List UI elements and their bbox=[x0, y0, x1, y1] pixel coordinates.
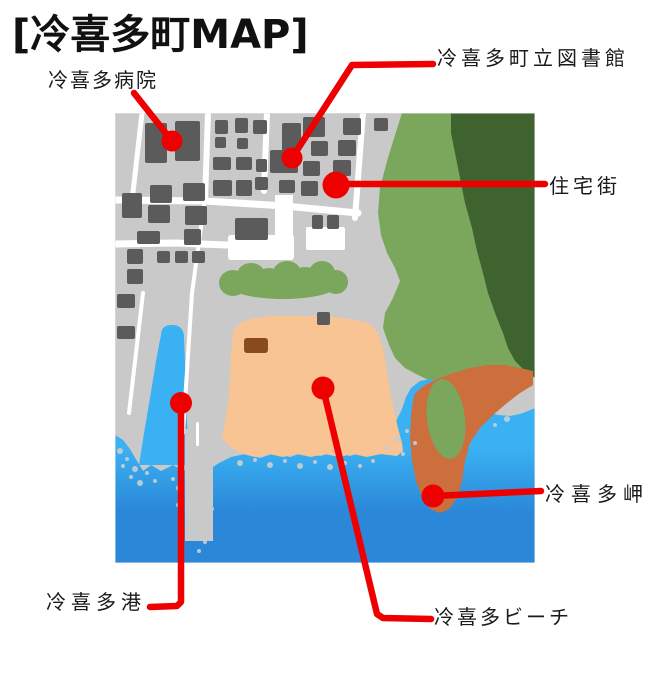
building bbox=[150, 185, 172, 203]
building bbox=[183, 183, 205, 201]
building bbox=[127, 249, 143, 264]
building bbox=[157, 251, 170, 263]
building bbox=[185, 206, 207, 225]
library-label: 冷喜多町立図書館 bbox=[437, 42, 629, 71]
building bbox=[317, 312, 330, 325]
building bbox=[237, 138, 248, 149]
building bbox=[215, 137, 226, 148]
building bbox=[303, 117, 325, 137]
library-building bbox=[270, 150, 298, 173]
map-title: [冷喜多町MAP] bbox=[12, 2, 309, 60]
building bbox=[312, 215, 323, 229]
building bbox=[303, 161, 320, 176]
building bbox=[311, 141, 328, 156]
building bbox=[374, 118, 388, 131]
beach-sand bbox=[222, 316, 403, 457]
hospital-label: 冷喜多病院 bbox=[48, 64, 158, 93]
building bbox=[236, 157, 252, 170]
building bbox=[253, 120, 267, 134]
building bbox=[122, 193, 142, 218]
building bbox=[213, 180, 232, 196]
building bbox=[145, 123, 167, 163]
pier bbox=[185, 422, 213, 541]
building bbox=[279, 180, 295, 193]
building bbox=[117, 294, 135, 308]
building bbox=[333, 160, 351, 176]
building bbox=[343, 118, 361, 135]
building bbox=[148, 205, 170, 223]
building bbox=[192, 251, 205, 263]
building bbox=[256, 159, 267, 172]
building bbox=[175, 121, 200, 161]
town-map-illustration bbox=[115, 113, 535, 563]
building bbox=[213, 157, 231, 170]
building bbox=[338, 140, 356, 156]
beach-hut bbox=[244, 338, 268, 353]
building bbox=[175, 251, 188, 263]
building bbox=[184, 229, 201, 245]
building bbox=[235, 218, 268, 240]
cape-label: 冷喜多岬 bbox=[545, 478, 649, 507]
building bbox=[127, 269, 143, 284]
building bbox=[282, 123, 301, 151]
building bbox=[235, 118, 248, 133]
building bbox=[327, 215, 339, 229]
building bbox=[137, 231, 160, 244]
building bbox=[301, 181, 318, 196]
beach-label: 冷喜多ビーチ bbox=[434, 601, 572, 630]
port-label: 冷喜多港 bbox=[46, 586, 146, 615]
residential-label: 住宅街 bbox=[549, 170, 621, 199]
building bbox=[255, 177, 268, 190]
building bbox=[236, 180, 252, 196]
building bbox=[215, 120, 228, 134]
kiita-town-map-page: [冷喜多町MAP] 冷喜多病院 冷喜多町立図書館 住宅街 冷喜多岬 冷喜多港 冷… bbox=[0, 0, 650, 700]
building bbox=[117, 326, 135, 339]
